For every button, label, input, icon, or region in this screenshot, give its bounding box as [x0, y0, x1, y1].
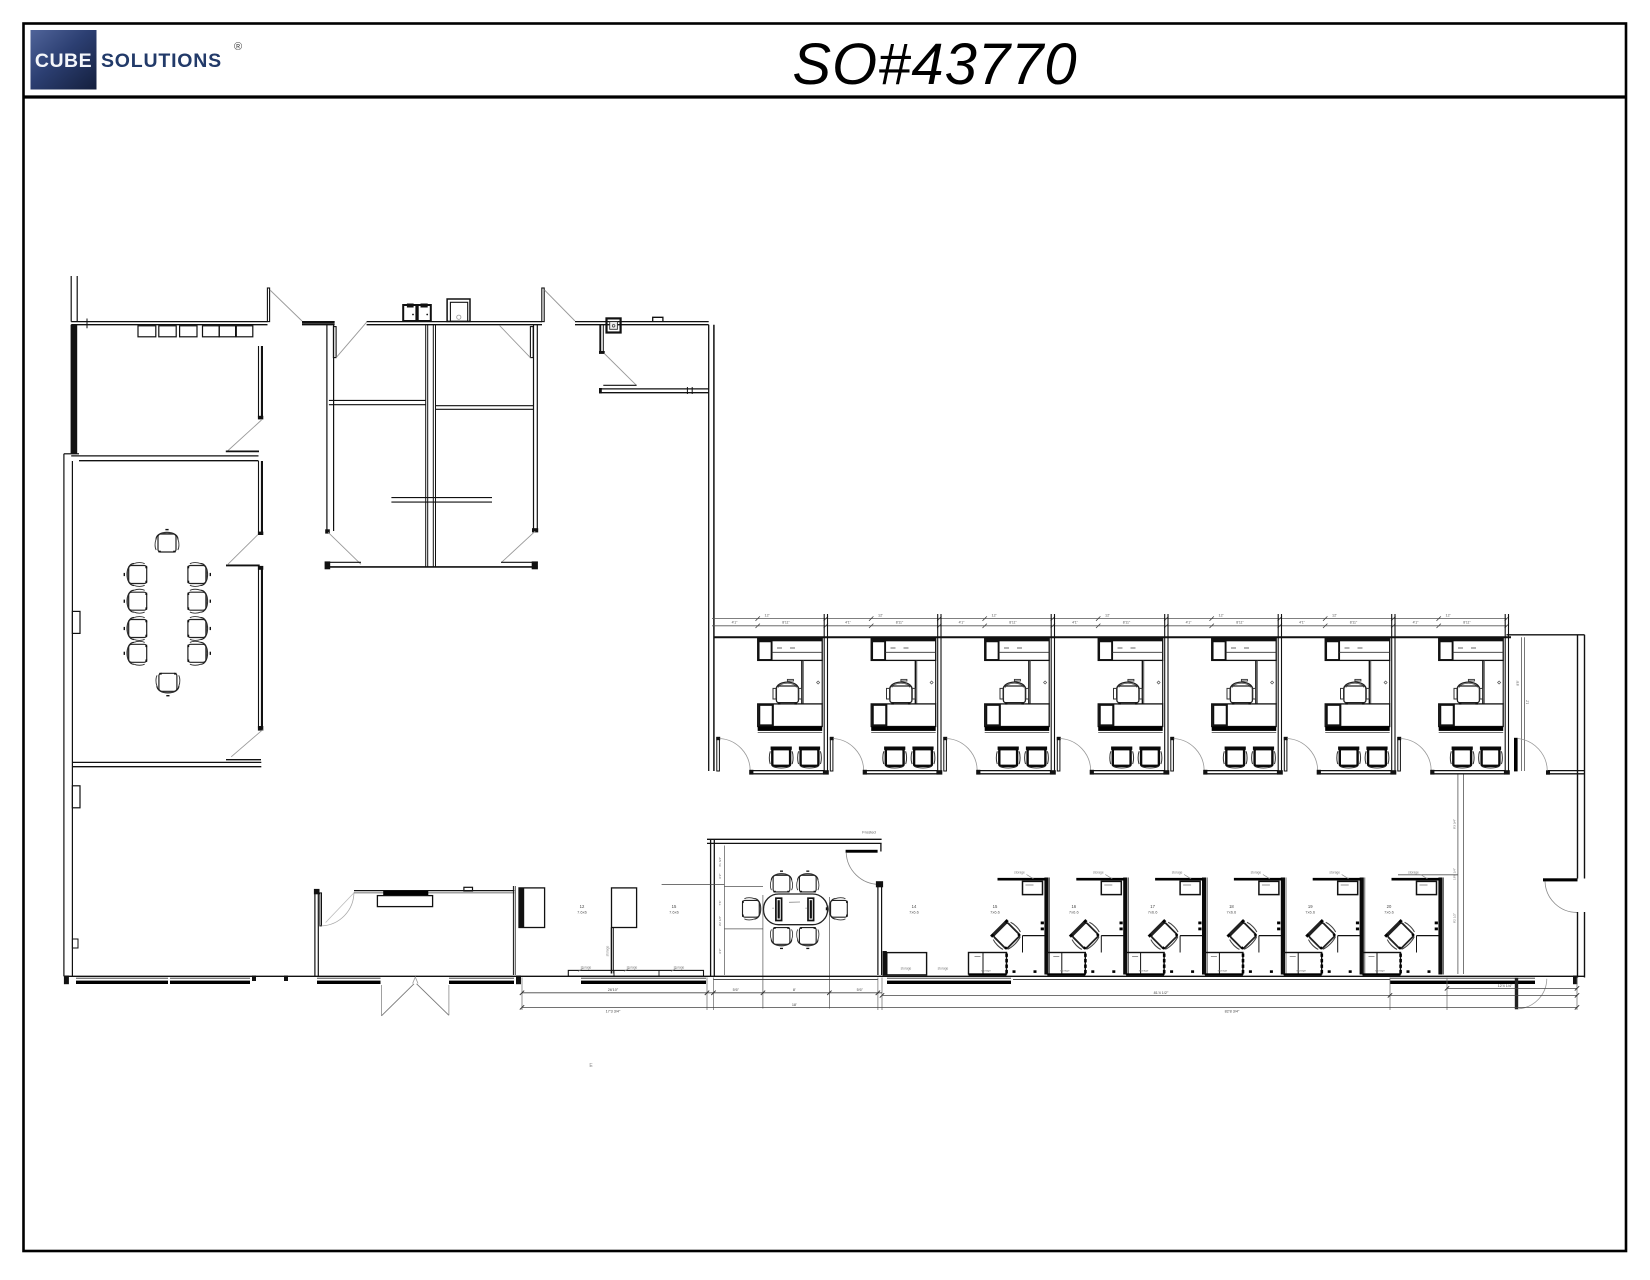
- svg-text:6'2": 6'2": [718, 948, 722, 953]
- svg-text:8'11": 8'11": [1123, 621, 1131, 625]
- svg-text:7.6x6: 7.6x6: [577, 910, 588, 915]
- svg-text:storage: storage: [1218, 969, 1228, 973]
- svg-text:4'1": 4'1": [845, 621, 852, 625]
- svg-text:12': 12': [878, 613, 883, 617]
- svg-text:SOLUTIONS: SOLUTIONS: [101, 50, 222, 72]
- svg-text:storage: storage: [1139, 969, 1149, 973]
- svg-text:12': 12': [1332, 613, 1337, 617]
- svg-text:storage: storage: [1251, 870, 1262, 874]
- svg-text:7x6.6: 7x6.6: [1384, 910, 1395, 915]
- svg-text:7x6.6: 7x6.6: [1069, 910, 1080, 915]
- svg-text:26'10": 26'10": [608, 988, 619, 992]
- svg-text:4'1": 4'1": [1299, 621, 1306, 625]
- svg-text:4'1": 4'1": [1186, 621, 1193, 625]
- svg-text:7x6.6: 7x6.6: [1148, 910, 1159, 915]
- svg-text:7x6.6: 7x6.6: [1305, 910, 1316, 915]
- svg-text:7x6.6: 7x6.6: [990, 910, 1001, 915]
- svg-text:12': 12': [1105, 613, 1110, 617]
- svg-text:7.6x6: 7.6x6: [669, 910, 680, 915]
- svg-text:12': 12': [992, 613, 997, 617]
- svg-text:8'2 1/2": 8'2 1/2": [1452, 913, 1456, 923]
- svg-text:5'6": 5'6": [857, 988, 864, 992]
- svg-text:8'11": 8'11": [1463, 621, 1471, 625]
- svg-text:storage: storage: [938, 967, 949, 971]
- svg-text:15: 15: [993, 904, 998, 909]
- svg-text:storage: storage: [606, 945, 610, 956]
- svg-text:storage: storage: [1093, 870, 1104, 874]
- svg-text:17'3 3/4": 17'3 3/4": [606, 1010, 621, 1014]
- svg-text:5'6": 5'6": [733, 988, 740, 992]
- svg-text:8'11": 8'11": [782, 621, 790, 625]
- svg-text:16: 16: [1071, 904, 1076, 909]
- svg-text:Frosted: Frosted: [862, 830, 876, 835]
- svg-text:20: 20: [1387, 904, 1392, 909]
- svg-text:storage: storage: [1014, 870, 1025, 874]
- svg-text:8'11": 8'11": [1236, 621, 1244, 625]
- svg-text:8'3 3/4": 8'3 3/4": [1452, 819, 1456, 829]
- svg-text:4'1": 4'1": [1072, 621, 1079, 625]
- svg-text:12': 12': [765, 613, 770, 617]
- svg-text:4'1": 4'1": [732, 621, 739, 625]
- svg-text:12: 12: [580, 904, 585, 909]
- svg-text:8'11": 8'11": [1009, 621, 1017, 625]
- svg-text:storage: storage: [1375, 969, 1385, 973]
- svg-text:19: 19: [1308, 904, 1313, 909]
- svg-text:12': 12': [1446, 613, 1451, 617]
- svg-text:+: +: [772, 907, 774, 911]
- svg-text:storage: storage: [1060, 969, 1070, 973]
- svg-text:81'4 1/2": 81'4 1/2": [1154, 991, 1169, 995]
- svg-text:8'8": 8'8": [1516, 680, 1520, 685]
- svg-text:15: 15: [672, 904, 677, 909]
- svg-text:storage: storage: [1172, 870, 1183, 874]
- svg-text:18: 18: [1229, 904, 1234, 909]
- svg-text:18': 18': [792, 1003, 797, 1007]
- svg-text:7x6.6: 7x6.6: [909, 910, 920, 915]
- svg-text:14: 14: [912, 904, 917, 909]
- svg-text:+: +: [805, 907, 807, 911]
- svg-text:8': 8': [793, 988, 796, 992]
- svg-text:6'2": 6'2": [718, 873, 722, 878]
- svg-text:®: ®: [234, 41, 242, 53]
- svg-text:18'8 1/4": 18'8 1/4": [1452, 868, 1456, 880]
- svg-text:8'11": 8'11": [896, 621, 904, 625]
- svg-text:storage: storage: [981, 969, 991, 973]
- svg-text:12'4 1/4": 12'4 1/4": [1498, 984, 1513, 988]
- svg-text:8'11": 8'11": [1350, 621, 1358, 625]
- svg-text:4'1": 4'1": [959, 621, 966, 625]
- svg-text:SO#43770: SO#43770: [792, 32, 1077, 97]
- svg-text:17: 17: [1150, 904, 1155, 909]
- svg-text:12': 12': [1219, 613, 1224, 617]
- svg-text:storage: storage: [1329, 870, 1340, 874]
- svg-text:82'8 3/4": 82'8 3/4": [1225, 1010, 1240, 1014]
- svg-text:storage: storage: [901, 967, 912, 971]
- svg-text:storage: storage: [1296, 969, 1306, 973]
- svg-text:4'1 3/4": 4'1 3/4": [718, 857, 722, 867]
- svg-text:4'1": 4'1": [1413, 621, 1420, 625]
- svg-text:CUBE: CUBE: [35, 50, 92, 72]
- svg-text:7'6": 7'6": [718, 900, 722, 905]
- svg-text:9'2 1/2": 9'2 1/2": [718, 916, 722, 926]
- svg-text:12': 12': [1526, 700, 1530, 705]
- svg-text:storage: storage: [1408, 870, 1419, 874]
- svg-text:7x6.6: 7x6.6: [1227, 910, 1238, 915]
